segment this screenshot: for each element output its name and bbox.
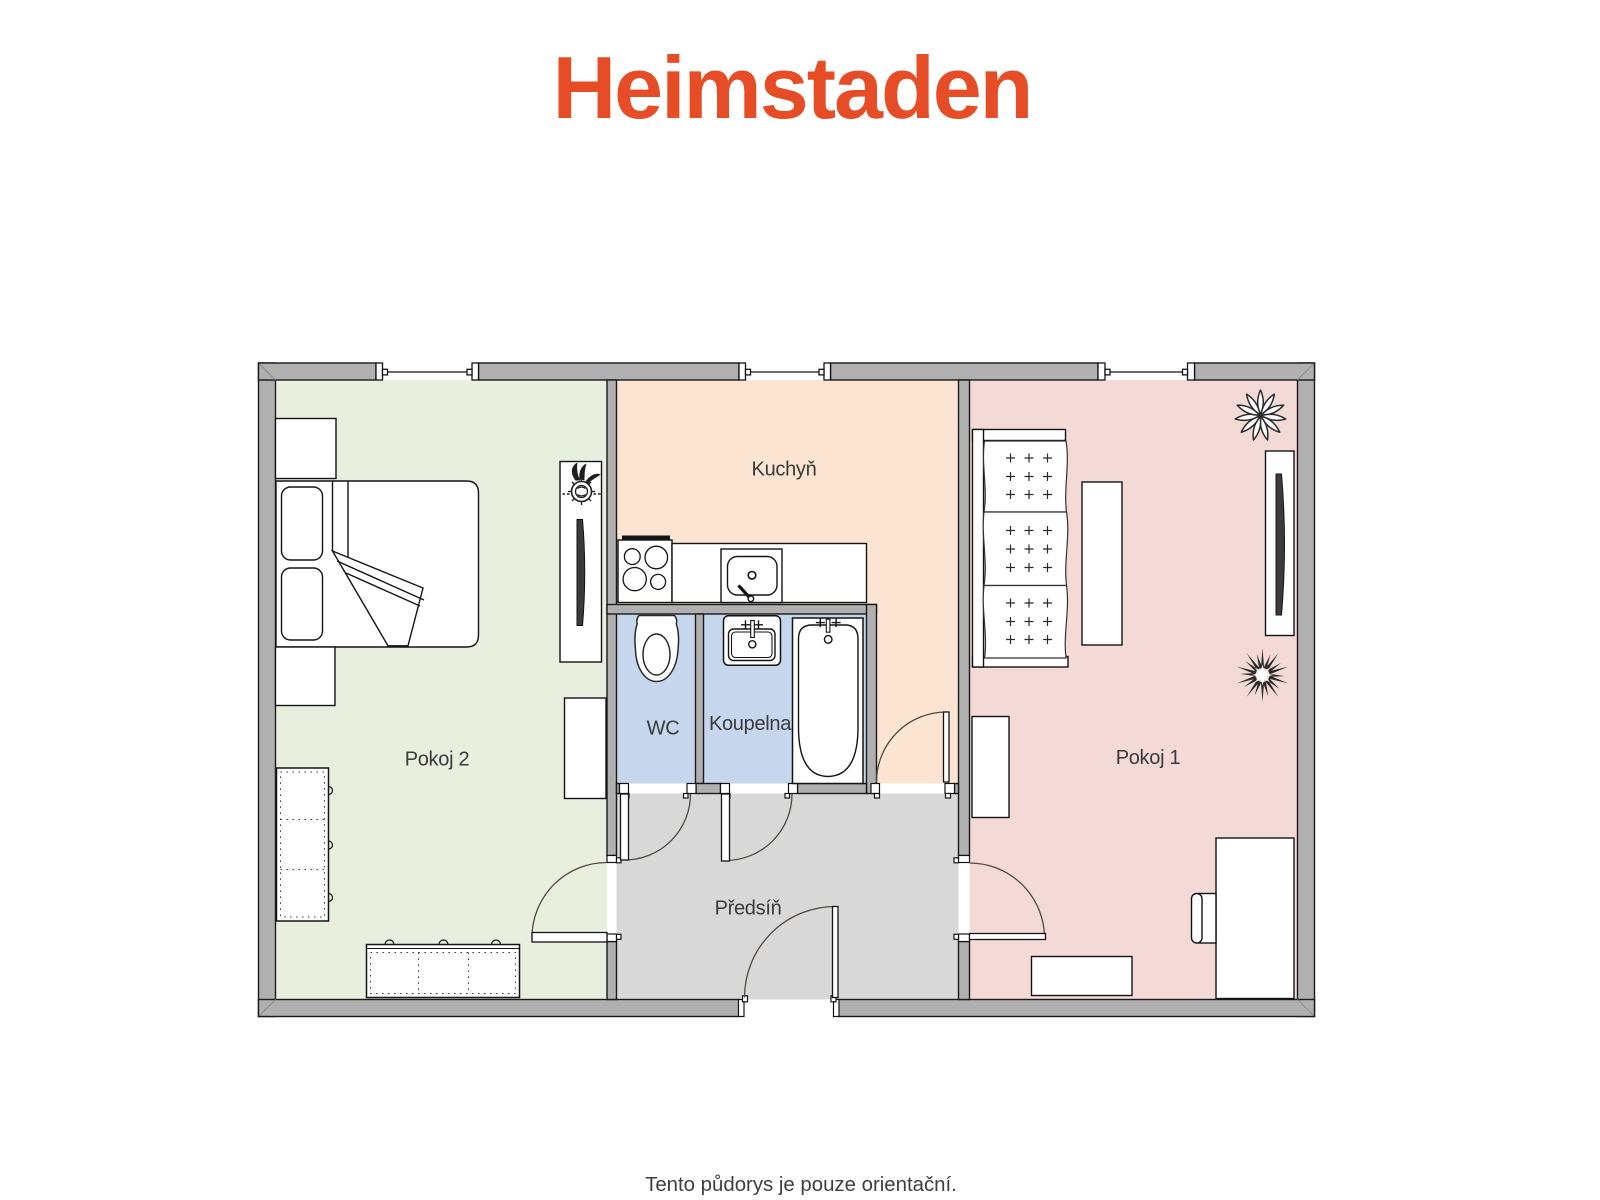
svg-text:WC: WC <box>647 718 680 740</box>
svg-text:Tento půdorys je pouze orienta: Tento půdorys je pouze orientační. <box>645 1174 957 1196</box>
svg-text:Koupelna: Koupelna <box>709 713 792 735</box>
svg-text:Pokoj 2: Pokoj 2 <box>405 749 470 771</box>
svg-text:Kuchyň: Kuchyň <box>752 459 817 481</box>
svg-text:Předsíň: Předsíň <box>715 898 782 920</box>
svg-text:Pokoj 1: Pokoj 1 <box>1116 747 1181 769</box>
svg-text:Heimstaden: Heimstaden <box>553 38 1032 137</box>
